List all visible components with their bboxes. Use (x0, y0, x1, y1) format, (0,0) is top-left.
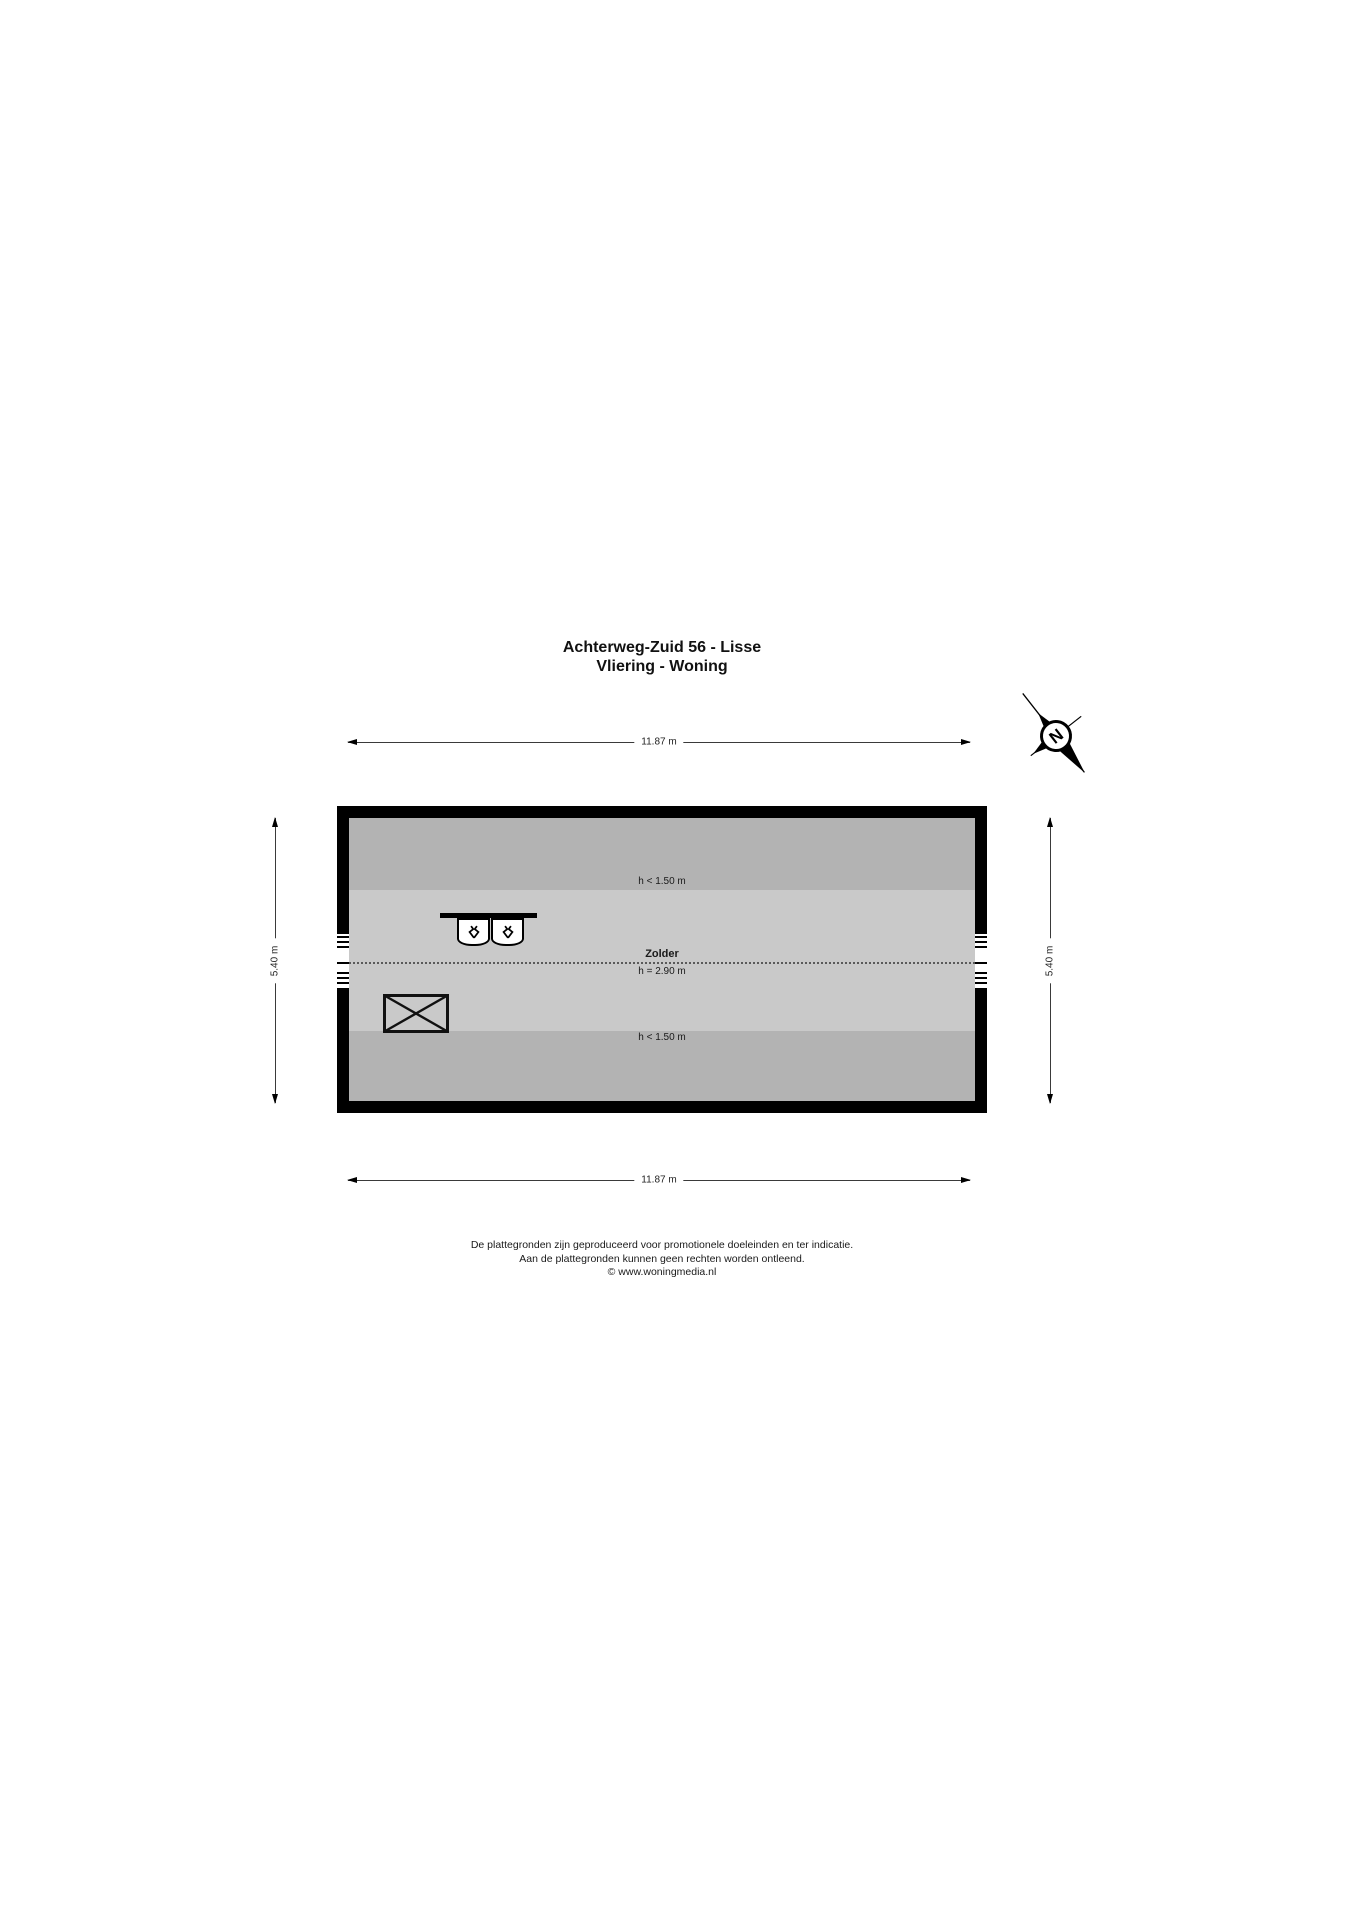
copyright-line: © www.woningmedia.nl (337, 1266, 987, 1280)
arrow-up-icon (1047, 817, 1053, 827)
disclaimer: De plattegronden zijn geproduceerd voor … (337, 1239, 987, 1280)
dimension-top-label: 11.87 m (634, 737, 683, 748)
arrow-left-icon (347, 739, 357, 745)
arrow-up-icon (272, 817, 278, 827)
wall-break-symbol-left (337, 934, 349, 988)
ventilation-unit-icon (457, 918, 490, 946)
floorplan-page: Achterweg-Zuid 56 - Lisse Vliering - Won… (0, 0, 1358, 1920)
unit-symbol-icon (463, 923, 485, 941)
dimension-bottom-label: 11.87 m (634, 1175, 683, 1186)
address-title: Achterweg-Zuid 56 - Lisse (337, 638, 987, 657)
dimension-bottom: 11.87 m (348, 1180, 970, 1181)
headroom-label-bottom: h < 1.50 m (349, 1032, 975, 1043)
disclaimer-line-2: Aan de plattegronden kunnen geen rechten… (337, 1253, 987, 1267)
dimension-left: 5.40 m (275, 818, 276, 1103)
unit-symbol-icon (497, 923, 519, 941)
dimension-right: 5.40 m (1050, 818, 1051, 1103)
arrow-right-icon (961, 1177, 971, 1183)
floorplan-attic: h < 1.50 m Zolder h = 2.90 m h < 1.50 m (337, 806, 987, 1113)
disclaimer-line-1: De plattegronden zijn geproduceerd voor … (337, 1239, 987, 1253)
arrow-down-icon (272, 1094, 278, 1104)
roof-ridge-line (349, 962, 975, 964)
arrow-right-icon (961, 739, 971, 745)
wall-break-symbol-right (975, 934, 987, 988)
arrow-left-icon (347, 1177, 357, 1183)
dimension-left-label: 5.40 m (270, 938, 281, 983)
page-title: Achterweg-Zuid 56 - Lisse Vliering - Won… (337, 638, 987, 676)
arrow-down-icon (1047, 1094, 1053, 1104)
room-name-label: Zolder (349, 948, 975, 960)
void-opening-symbol (383, 994, 449, 1033)
compass-north-icon: N (1012, 686, 1100, 782)
floor-subtitle: Vliering - Woning (337, 657, 987, 676)
room-height-label: h = 2.90 m (349, 966, 975, 977)
dimension-top: 11.87 m (348, 742, 970, 743)
dimension-right-label: 5.40 m (1045, 938, 1056, 983)
headroom-label-top: h < 1.50 m (349, 876, 975, 887)
ventilation-unit-icon (491, 918, 524, 946)
